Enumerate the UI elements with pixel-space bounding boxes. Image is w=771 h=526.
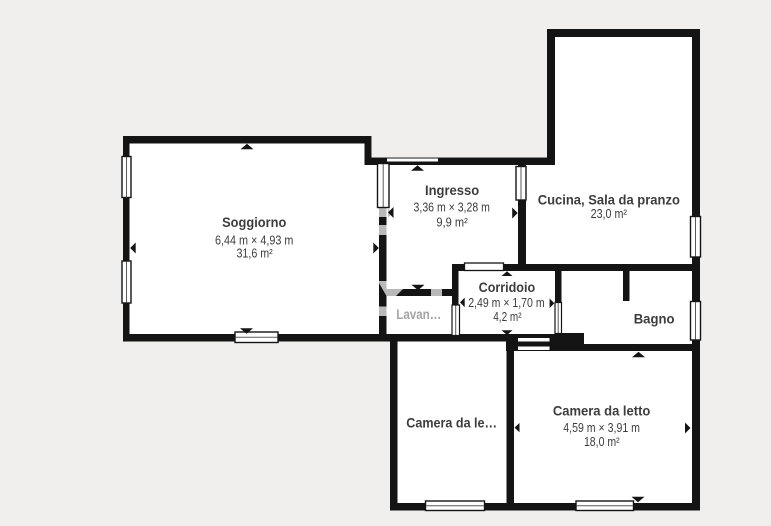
- svg-text:18,0 m²: 18,0 m²: [584, 434, 620, 449]
- svg-text:Soggiorno: Soggiorno: [222, 215, 286, 230]
- svg-text:Corridoio: Corridoio: [479, 280, 536, 295]
- svg-text:Lavan…: Lavan…: [396, 307, 441, 322]
- svg-text:Camera da le…: Camera da le…: [406, 416, 497, 431]
- svg-text:3,36 m × 3,28 m: 3,36 m × 3,28 m: [414, 199, 490, 214]
- svg-text:Bagno: Bagno: [634, 312, 675, 327]
- svg-text:4,59 m × 3,91 m: 4,59 m × 3,91 m: [563, 420, 640, 435]
- svg-text:2,49 m × 1,70 m: 2,49 m × 1,70 m: [468, 295, 544, 310]
- svg-text:31,6 m²: 31,6 m²: [236, 246, 273, 261]
- svg-text:Ingresso: Ingresso: [425, 183, 479, 198]
- svg-text:4,2 m²: 4,2 m²: [493, 309, 522, 324]
- svg-text:9,9 m²: 9,9 m²: [436, 214, 468, 229]
- svg-text:23,0 m²: 23,0 m²: [591, 206, 628, 221]
- svg-text:Camera da letto: Camera da letto: [553, 404, 651, 419]
